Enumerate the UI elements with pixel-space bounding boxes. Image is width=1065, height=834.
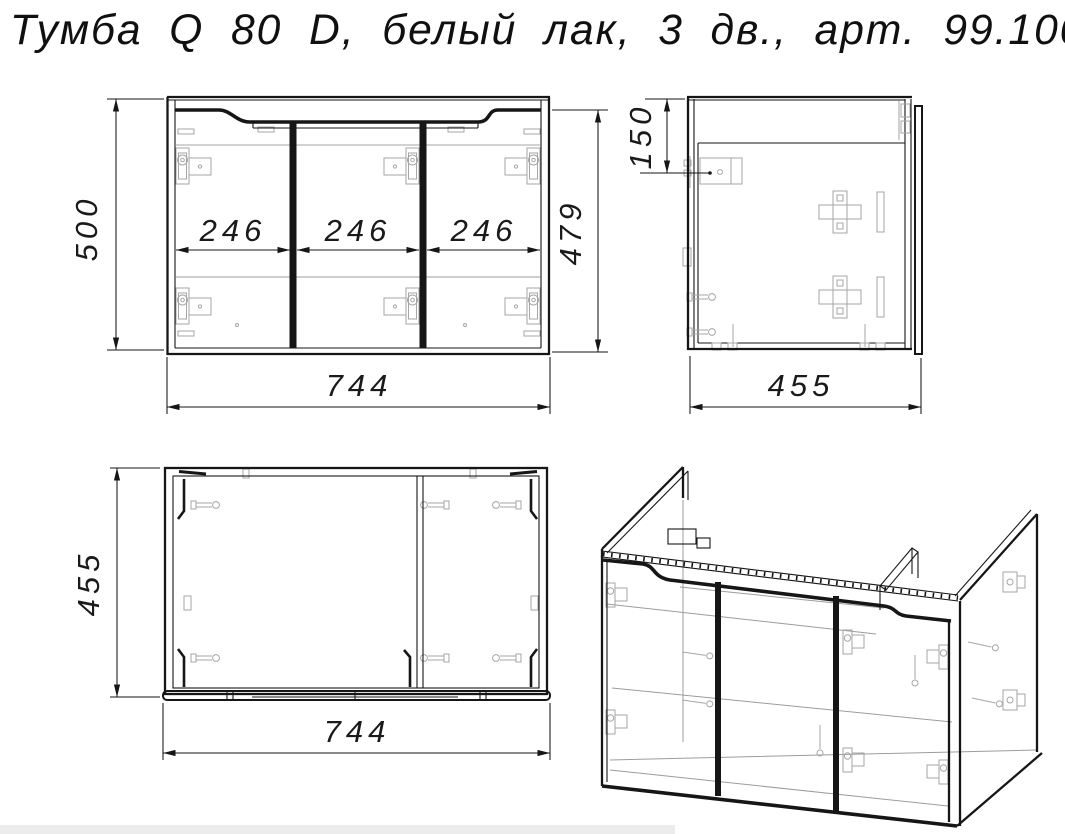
right-panel-edges [960,514,1037,752]
dim-door-width-2-label: 246 [324,213,392,248]
top-view: 455 744 [71,468,550,760]
screw-symbol [817,725,823,756]
top-view-inner-outline [173,476,539,688]
screw-symbol [421,654,449,662]
hinge-symbol [927,760,948,784]
screw-symbol [421,501,449,509]
dowel-symbols [184,469,538,610]
hidden-interior-lines [607,500,1036,806]
door-gap-lines [227,691,486,700]
cam-lock-symbol [819,276,861,318]
hinge-symbol [505,148,540,184]
screw-symbol [967,639,999,651]
bottom-fitting-symbols [712,324,885,350]
hinge-symbol [176,288,211,324]
drawing-sheet: Тумба Q 80 D, белый лак, 3 дв., арт. 99.… [0,0,1065,834]
screw-symbol [493,501,521,509]
hanger-bracket-symbol [684,156,742,188]
edge-banding-hatch [603,554,958,598]
hinge-symbol [384,288,419,324]
screw-symbol [493,654,521,662]
hinge-symbol [606,710,627,734]
hinge-symbol [384,148,419,184]
dimension-side-depth: 455 [690,356,921,414]
right-panel-inner-edge [955,510,1031,596]
top-bracket-symbol [668,529,696,544]
screw-symbol [682,697,714,707]
side-interior-lines [694,99,905,348]
leader-dot [708,171,712,175]
dim-front-height-label: 500 [69,195,104,262]
dim-side-depth-label: 455 [768,368,835,403]
front-view: 500 479 246 246 246 744 [69,97,608,414]
isometric-view [0,467,1042,834]
hinge-symbol [176,148,211,184]
cam-lock-symbol [819,191,861,233]
cam-dowel-symbols [683,101,910,317]
dim-front-door-height-label: 479 [553,199,588,266]
dim-door-width-1-label: 246 [199,213,267,248]
screw-symbol [687,328,715,336]
screw-symbol [971,695,1003,707]
dim-front-width-label: 744 [326,368,393,403]
bottom-back-edge [957,753,1042,826]
screw-symbol [191,654,219,662]
side-view: 150 455 [623,97,922,414]
doors-plan-band [163,691,550,700]
cam-lock-symbol [1003,690,1025,710]
door-divider [420,122,427,348]
corner-bracket-symbols [178,479,537,687]
dim-top-width-label: 744 [324,714,391,749]
hinge-symbol [505,288,540,324]
dim-door-width-3-label: 246 [450,213,518,248]
technical-drawing: 500 479 246 246 246 744 [0,0,1065,834]
hinge-symbol [927,645,948,669]
dimension-top-width: 744 [163,703,550,760]
screw-symbol [682,649,714,659]
door-divider [290,122,297,348]
dimension-front-door-widths: 246 246 246 [176,213,540,250]
dimension-front-door-height: 479 [552,110,608,352]
top-bracket-symbol [697,538,710,548]
dim-side-offset-label: 150 [623,103,658,170]
dim-top-depth-label: 455 [71,550,106,617]
cam-lock-symbol [1003,572,1025,592]
left-splash-inner [607,471,688,553]
door-top-basin-profile [603,560,951,621]
screw-symbol [191,501,219,509]
back-rail-plan-marks [179,472,537,475]
hinge-symbol [606,583,627,607]
dimension-front-overall-width: 744 [167,357,550,414]
hinge-symbol [843,748,864,772]
scan-artifact [0,825,675,834]
door-side-profile [915,106,922,354]
dimension-front-overall-height: 500 [69,99,164,350]
screw-symbol [912,655,918,686]
door-top-basin-profile [175,110,541,122]
front-bottom-edge [602,786,957,826]
top-view-body-outline [165,468,547,694]
hinge-symbol [843,630,864,654]
screw-symbol [687,293,715,301]
dimension-top-depth: 455 [71,468,160,697]
